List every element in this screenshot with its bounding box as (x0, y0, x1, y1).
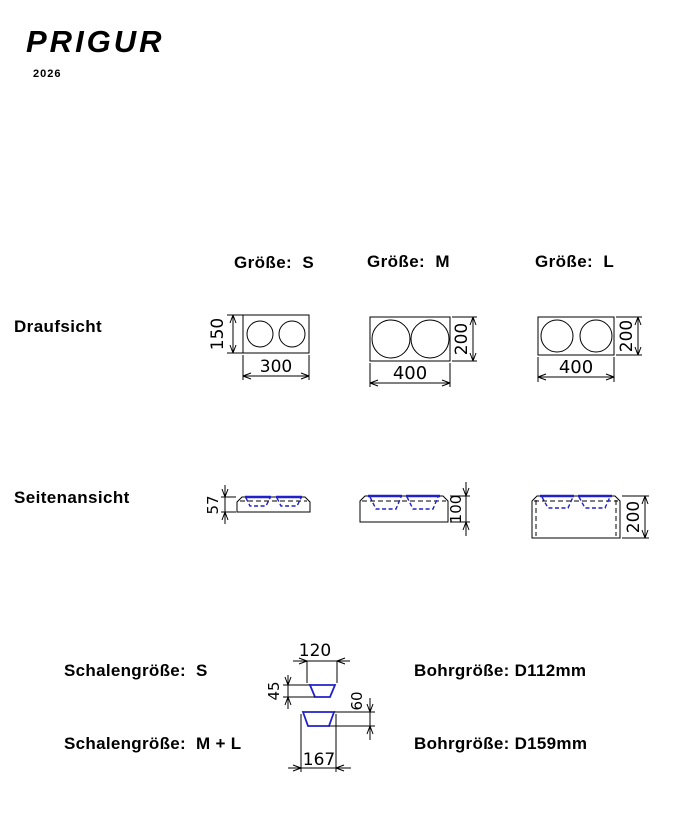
side-view-s-drawing: 57 (200, 480, 328, 530)
brand-logo: PRIGUR (26, 24, 165, 60)
size-header-m: Größe: M (367, 252, 450, 272)
svg-text:200: 200 (617, 320, 637, 352)
dim-height-200: 200 (452, 317, 477, 361)
row-label-top-view: Draufsicht (14, 317, 102, 337)
side-view-l-outline (532, 496, 620, 538)
brand-year: 2026 (33, 68, 61, 80)
dim-height-57: 57 (204, 485, 236, 524)
side-view-l-drawing: 200 (518, 478, 670, 558)
svg-text:60: 60 (348, 691, 366, 710)
svg-text:200: 200 (452, 323, 472, 355)
svg-text:400: 400 (559, 357, 593, 378)
dim-width-400: 400 (370, 363, 450, 387)
hidden-bowl-profile (246, 498, 301, 506)
dim-height-100: 100 (447, 482, 470, 536)
svg-text:150: 150 (208, 318, 228, 350)
dim-width-300: 300 (243, 355, 309, 380)
svg-text:167: 167 (303, 750, 335, 770)
drawing-sheet: PRIGUR 2026 Größe: S Größe: M Größe: L D… (0, 0, 676, 823)
row-label-side-view: Seitenansicht (14, 488, 130, 508)
bowl-size-ml-label: Schalengröße: M + L (64, 734, 241, 754)
dim-height-200: 200 (622, 496, 649, 538)
top-view-l-drawing: 400 200 (520, 306, 670, 388)
svg-text:120: 120 (299, 641, 331, 661)
size-header-s: Größe: S (234, 253, 314, 273)
bowl-hole-circle (279, 321, 305, 347)
top-view-l-outline (538, 317, 614, 355)
top-view-m-drawing: 400 200 (345, 306, 490, 391)
svg-text:400: 400 (393, 363, 427, 384)
bore-size-ml-label: Bohrgröße: D159mm (414, 734, 587, 754)
bowl-hole-circle (247, 321, 273, 347)
bowl-hole-circle (580, 320, 612, 352)
side-view-s-outline (237, 497, 310, 512)
bowl-hole-circle (411, 320, 449, 358)
dim-width-120: 120 (293, 641, 350, 683)
bowl-ml-drawing: 60 167 (268, 690, 396, 790)
hidden-bowl-profile (370, 497, 438, 509)
svg-text:300: 300 (260, 357, 292, 377)
dim-width-167: 167 (288, 714, 351, 772)
dim-height-150: 150 (208, 315, 243, 353)
svg-text:100: 100 (447, 495, 465, 524)
bowl-size-s-label: Schalengröße: S (64, 661, 208, 681)
side-view-m-outline (360, 496, 448, 522)
top-view-s-drawing: 150 300 (205, 306, 325, 388)
bowl-ml-profile (303, 712, 334, 726)
svg-text:200: 200 (624, 501, 644, 533)
bowl-hole-circle (372, 320, 410, 358)
top-view-s-outline (243, 315, 309, 353)
dim-width-400: 400 (538, 357, 614, 382)
size-header-l: Größe: L (535, 252, 614, 272)
hidden-bowl-profile (542, 497, 610, 508)
svg-text:57: 57 (204, 495, 222, 514)
bowl-hole-circle (541, 320, 573, 352)
bore-size-s-label: Bohrgröße: D112mm (414, 661, 586, 681)
dim-height-200: 200 (616, 317, 642, 355)
side-view-m-drawing: 100 (348, 478, 486, 542)
